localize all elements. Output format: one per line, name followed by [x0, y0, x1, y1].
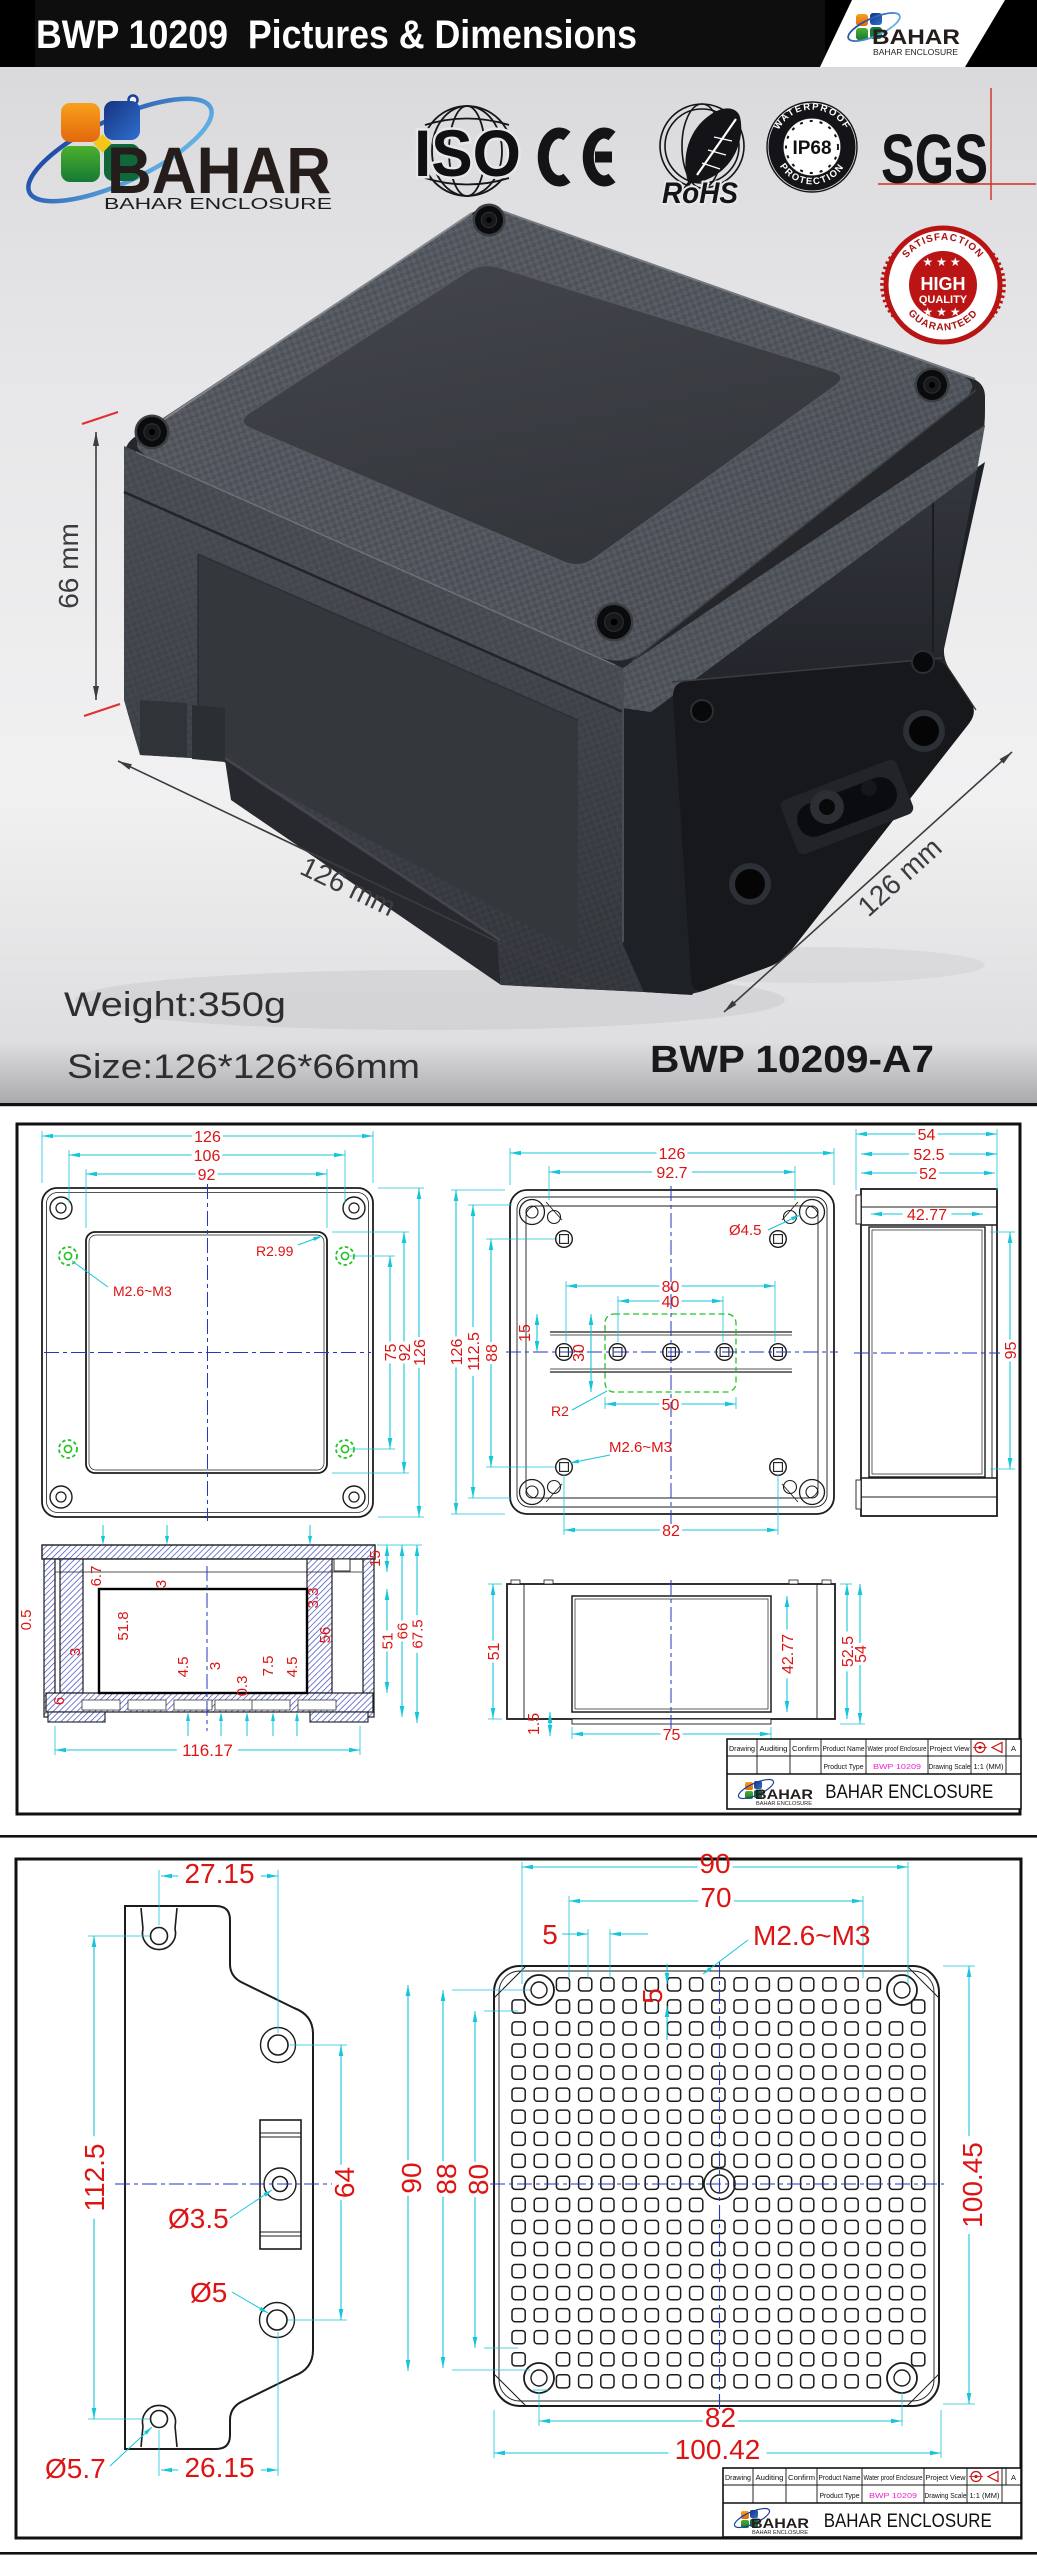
- svg-text:82: 82: [662, 1523, 680, 1540]
- svg-text:126: 126: [449, 1339, 466, 1366]
- svg-text:51: 51: [486, 1643, 503, 1661]
- svg-text:0.5: 0.5: [18, 1610, 35, 1631]
- svg-text:3: 3: [207, 1662, 224, 1670]
- svg-text:54: 54: [853, 1645, 870, 1663]
- svg-text:Confirm: Confirm: [792, 1744, 819, 1753]
- svg-text:3: 3: [153, 1580, 170, 1588]
- svg-text:BAHAR: BAHAR: [751, 2515, 809, 2531]
- svg-text:BAHAR: BAHAR: [755, 1786, 813, 1802]
- svg-text:Ø5: Ø5: [190, 2277, 227, 2308]
- svg-text:100.42: 100.42: [675, 2434, 761, 2465]
- svg-text:92: 92: [198, 1167, 216, 1184]
- svg-text:66 mm: 66 mm: [53, 523, 84, 609]
- svg-text:BAHAR ENCLOSURE: BAHAR ENCLOSURE: [752, 2530, 808, 2536]
- svg-text:88: 88: [484, 1344, 501, 1362]
- svg-text:BAHAR ENCLOSURE: BAHAR ENCLOSURE: [825, 1782, 993, 1803]
- svg-text:26.15: 26.15: [184, 2452, 254, 2483]
- svg-text:15: 15: [367, 1550, 384, 1567]
- svg-text:BAHAR: BAHAR: [872, 26, 960, 49]
- svg-text:Drawing: Drawing: [729, 1744, 755, 1753]
- svg-text:112.5: 112.5: [466, 1332, 483, 1371]
- svg-text:RoHS: RoHS: [662, 177, 738, 210]
- svg-text:5: 5: [637, 1988, 668, 2004]
- svg-text:42.77: 42.77: [780, 1634, 797, 1674]
- svg-text:Product Type: Product Type: [824, 1762, 864, 1771]
- svg-text:6.7: 6.7: [88, 1566, 105, 1587]
- svg-text:R2.99: R2.99: [256, 1243, 294, 1259]
- svg-text:126: 126: [194, 1129, 221, 1146]
- svg-text:1:1 (MM): 1:1 (MM): [970, 2491, 1001, 2500]
- svg-text:M2.6~M3: M2.6~M3: [609, 1439, 672, 1456]
- svg-text:SGS: SGS: [881, 120, 988, 198]
- svg-text:BAHAR ENCLOSURE: BAHAR ENCLOSURE: [756, 1801, 812, 1807]
- svg-text:116.17: 116.17: [182, 1741, 233, 1760]
- svg-text:Drawing: Drawing: [725, 2473, 751, 2482]
- svg-text:M2.6~M3: M2.6~M3: [753, 1920, 871, 1951]
- svg-text:★★★: ★★★: [922, 305, 963, 319]
- svg-text:3.3: 3.3: [305, 1588, 322, 1609]
- svg-text:BWP 10209: BWP 10209: [869, 2491, 917, 2500]
- svg-text:112.5: 112.5: [79, 2144, 110, 2212]
- svg-text:67.5: 67.5: [409, 1619, 426, 1648]
- svg-text:M2.6~M3: M2.6~M3: [113, 1283, 172, 1299]
- svg-text:90: 90: [699, 1848, 730, 1879]
- svg-text:Confirm: Confirm: [788, 2473, 815, 2482]
- svg-text:Water proof Enclosure: Water proof Enclosure: [868, 1744, 927, 1753]
- svg-text:88: 88: [431, 2163, 462, 2194]
- svg-text:4.5: 4.5: [284, 1657, 301, 1678]
- svg-text:42.77: 42.77: [907, 1207, 947, 1224]
- svg-text:126: 126: [659, 1146, 686, 1163]
- svg-text:BAHAR ENCLOSURE: BAHAR ENCLOSURE: [104, 196, 332, 213]
- svg-text:126: 126: [412, 1339, 429, 1366]
- svg-text:70: 70: [700, 1882, 731, 1913]
- svg-text:Project View: Project View: [930, 1744, 971, 1753]
- svg-text:92.7: 92.7: [656, 1165, 687, 1182]
- svg-text:BWP 10209: BWP 10209: [873, 1762, 921, 1771]
- svg-text:27.15: 27.15: [184, 1858, 254, 1889]
- svg-text:1:1 (MM): 1:1 (MM): [974, 1762, 1005, 1771]
- svg-text:Ø3.5: Ø3.5: [168, 2203, 229, 2234]
- svg-text:BAHAR ENCLOSURE: BAHAR ENCLOSURE: [873, 48, 958, 57]
- svg-text:5: 5: [542, 1919, 558, 1950]
- svg-text:Product Name: Product Name: [819, 2473, 861, 2482]
- svg-text:Water proof Enclosure: Water proof Enclosure: [864, 2473, 923, 2482]
- svg-text:106: 106: [194, 1148, 221, 1165]
- svg-text:★★★: ★★★: [922, 255, 963, 269]
- svg-text:Auditing: Auditing: [756, 2473, 784, 2482]
- svg-text:BAHAR ENCLOSURE: BAHAR ENCLOSURE: [824, 2511, 992, 2532]
- svg-text:52: 52: [919, 1166, 937, 1183]
- svg-text:Product Type: Product Type: [820, 2491, 860, 2500]
- svg-text:6: 6: [51, 1697, 68, 1705]
- svg-text:52.5: 52.5: [913, 1147, 944, 1164]
- svg-text:50: 50: [662, 1397, 680, 1414]
- svg-text:Auditing: Auditing: [760, 1744, 788, 1753]
- svg-text:1.5: 1.5: [526, 1713, 543, 1735]
- svg-text:Weight:350g: Weight:350g: [64, 986, 286, 1024]
- svg-text:15: 15: [517, 1324, 534, 1342]
- svg-text:Ø4.5: Ø4.5: [729, 1222, 762, 1239]
- svg-text:R2: R2: [551, 1403, 569, 1419]
- svg-text:0.3: 0.3: [234, 1676, 251, 1697]
- svg-text:54: 54: [918, 1127, 936, 1144]
- svg-text:3: 3: [67, 1648, 84, 1656]
- svg-text:Project View: Project View: [926, 2473, 967, 2482]
- svg-text:56: 56: [317, 1627, 334, 1644]
- svg-text:100.45: 100.45: [957, 2142, 988, 2228]
- svg-text:64: 64: [329, 2167, 360, 2198]
- svg-text:Size:126*126*66mm: Size:126*126*66mm: [67, 1048, 420, 1086]
- svg-text:A: A: [1011, 1744, 1016, 1753]
- svg-text:30: 30: [571, 1344, 588, 1362]
- svg-text:A: A: [1011, 2473, 1016, 2482]
- svg-text:7.5: 7.5: [260, 1656, 277, 1677]
- svg-text:HIGH: HIGH: [921, 274, 966, 294]
- svg-text:51.8: 51.8: [115, 1611, 132, 1640]
- svg-text:Ø5.7: Ø5.7: [45, 2453, 106, 2484]
- svg-text:75: 75: [663, 1727, 681, 1744]
- svg-text:Product Name: Product Name: [823, 1744, 865, 1753]
- svg-text:95: 95: [1003, 1342, 1020, 1360]
- svg-text:4.5: 4.5: [175, 1657, 192, 1678]
- svg-text:BWP 10209-A7: BWP 10209-A7: [650, 1039, 934, 1081]
- svg-text:40: 40: [662, 1294, 680, 1311]
- svg-text:ISO: ISO: [414, 116, 521, 190]
- svg-text:Drawing Scale: Drawing Scale: [929, 1762, 971, 1771]
- svg-text:80: 80: [463, 2164, 494, 2195]
- svg-text:IP68: IP68: [792, 138, 831, 159]
- svg-text:90: 90: [396, 2162, 427, 2193]
- svg-text:BWP 10209 Pictures & Dimensio: BWP 10209 Pictures & Dimensions: [36, 13, 637, 57]
- svg-text:82: 82: [705, 2402, 736, 2433]
- svg-text:Drawing Scale: Drawing Scale: [925, 2491, 967, 2500]
